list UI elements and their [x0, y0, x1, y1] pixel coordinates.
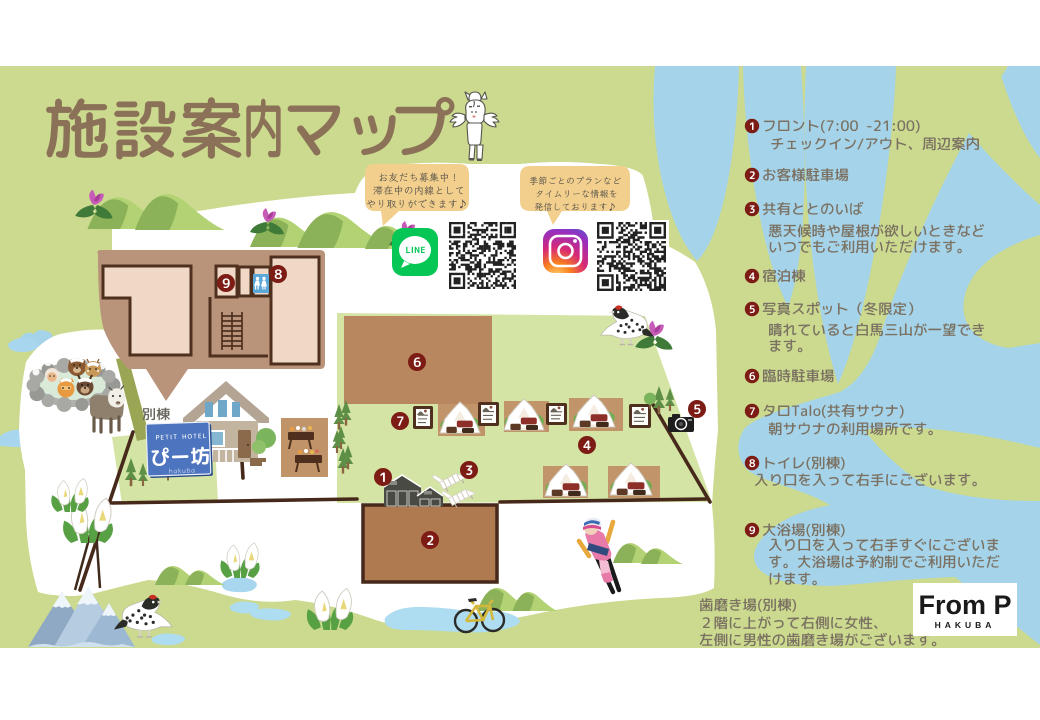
svg-text:From P: From P — [918, 590, 1011, 620]
svg-text:HAKUBA: HAKUBA — [935, 620, 996, 630]
